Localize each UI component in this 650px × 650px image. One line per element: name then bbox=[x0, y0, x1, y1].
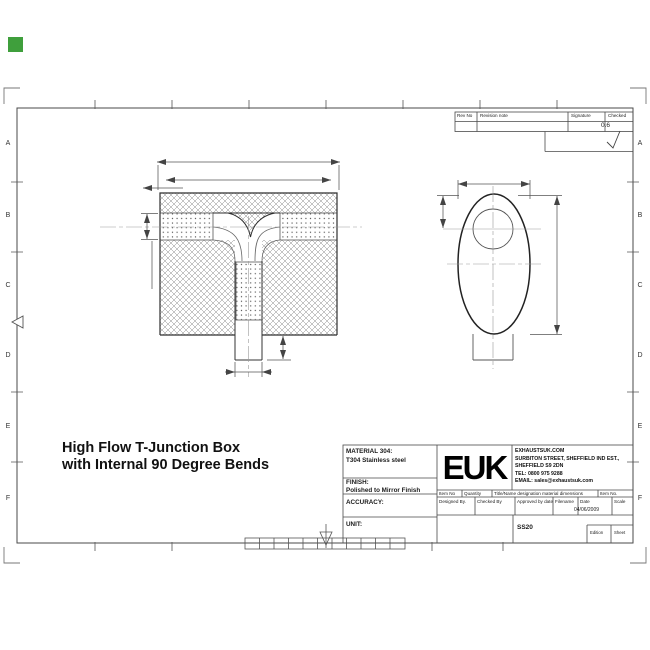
company-info: EXHAUSTSUK.COM SURBITON STREET, SHEFFIEL… bbox=[515, 448, 619, 486]
date-header: Date bbox=[580, 499, 590, 504]
row-letter-f-right: F bbox=[634, 495, 646, 502]
row-letter-a-left: A bbox=[2, 140, 14, 147]
unit-label: UNIT: bbox=[346, 521, 362, 528]
bottom-centering-mark bbox=[320, 524, 332, 548]
end-view-dimensions bbox=[437, 180, 562, 335]
revision-note-header: Revision note bbox=[480, 113, 508, 118]
surface-finish-value: 0.6 bbox=[601, 122, 610, 129]
company-phone: TEL: 0800 975 9288 bbox=[515, 471, 619, 479]
drawing-linework bbox=[0, 0, 650, 650]
row-letter-d-left: D bbox=[2, 352, 14, 359]
end-elevation-view bbox=[437, 180, 562, 369]
drawing-title-line2: with Internal 90 Degree Bends bbox=[62, 457, 269, 474]
checked-header: Checked bbox=[608, 113, 626, 118]
company-city: SHEFFIELD S9 2DN bbox=[515, 463, 619, 471]
designation-header: Title/Name designation material dimensio… bbox=[494, 491, 583, 496]
bottom-perforated-liner bbox=[236, 262, 262, 320]
signature-header: Signature bbox=[571, 113, 591, 118]
finish-label: FINISH: bbox=[346, 479, 369, 486]
designed-by-header: Designed By. bbox=[439, 499, 466, 504]
row-letter-f-left: F bbox=[2, 495, 14, 502]
filename-header: Filename bbox=[555, 499, 574, 504]
drawing-title: High Flow T-Junction Box with Internal 9… bbox=[62, 440, 269, 474]
green-marker-square bbox=[8, 37, 23, 52]
scale-header: Scale bbox=[614, 499, 626, 504]
material-label: MATERIAL 304: bbox=[346, 448, 392, 455]
row-letter-c-left: C bbox=[2, 282, 14, 289]
company-email: EMAIL: sales@exhaustsuk.com bbox=[515, 478, 619, 486]
row-letter-a-right: A bbox=[634, 140, 646, 147]
sheet-label: Sheet bbox=[614, 530, 625, 535]
company-street: SURBITON STREET, SHEFFIELD IND EST., bbox=[515, 456, 619, 464]
row-letter-d-right: D bbox=[634, 352, 646, 359]
checked-by-header: Checked By bbox=[477, 499, 502, 504]
drawing-sheet: High Flow T-Junction Box with Internal 9… bbox=[0, 0, 650, 650]
row-letter-b-left: B bbox=[2, 212, 14, 219]
finish-value: Polished to Mirror Finish bbox=[346, 487, 420, 494]
row-letter-e-right: E bbox=[634, 423, 646, 430]
company-website: EXHAUSTSUK.COM bbox=[515, 448, 619, 456]
left-perforated-liner bbox=[160, 213, 213, 240]
approved-by-header: Approved by date bbox=[517, 499, 553, 504]
date-value: 04/06/2009 bbox=[574, 507, 599, 513]
row-letter-c-right: C bbox=[634, 282, 646, 289]
right-perforated-liner bbox=[280, 213, 337, 240]
drawing-title-line1: High Flow T-Junction Box bbox=[62, 440, 269, 457]
material-value: T304 Stainless steel bbox=[346, 457, 406, 464]
rev-no-header: Rev No bbox=[457, 113, 472, 118]
row-letter-e-left: E bbox=[2, 423, 14, 430]
company-logo: EUK bbox=[437, 445, 512, 490]
quantity-header: Quantity bbox=[464, 491, 481, 496]
accuracy-label: ACCURACY: bbox=[346, 499, 384, 506]
edition-label: Edition bbox=[590, 530, 603, 535]
drawing-number: SS20 bbox=[517, 524, 533, 531]
item-no-header: Item No bbox=[439, 491, 455, 496]
main-section-view bbox=[100, 162, 362, 377]
row-letter-b-right: B bbox=[634, 212, 646, 219]
item-no2-header: Item No. bbox=[600, 491, 617, 496]
